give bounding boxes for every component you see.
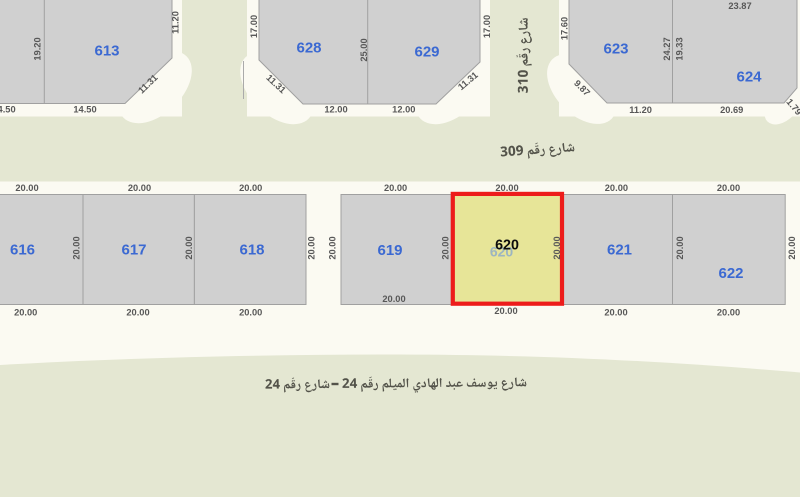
svg-text:23.87: 23.87: [728, 1, 751, 11]
svg-text:20.00: 20.00: [604, 308, 627, 318]
svg-text:616: 616: [10, 242, 35, 259]
svg-text:20.00: 20.00: [184, 236, 194, 259]
svg-text:628: 628: [296, 40, 321, 57]
svg-text:20.00: 20.00: [14, 308, 37, 318]
svg-text:617: 617: [121, 242, 146, 259]
svg-text:11.20: 11.20: [171, 11, 181, 34]
svg-text:20.69: 20.69: [720, 105, 743, 115]
svg-text:20.00: 20.00: [440, 236, 450, 259]
svg-text:20.00: 20.00: [239, 183, 262, 193]
svg-text:20.00: 20.00: [787, 236, 797, 259]
svg-text:20.00: 20.00: [307, 236, 317, 259]
svg-text:20.00: 20.00: [552, 236, 562, 259]
svg-text:621: 621: [607, 242, 632, 259]
svg-text:623: 623: [603, 41, 628, 58]
svg-text:620: 620: [495, 238, 519, 254]
svg-text:17.00: 17.00: [249, 15, 259, 38]
svg-text:20.00: 20.00: [382, 294, 405, 304]
svg-text:19.33: 19.33: [675, 37, 685, 60]
svg-text:19.20: 19.20: [33, 37, 43, 60]
svg-text:20.00: 20.00: [72, 236, 82, 259]
svg-text:25.00: 25.00: [359, 38, 369, 61]
svg-text:14.50: 14.50: [0, 105, 16, 115]
svg-text:20.00: 20.00: [126, 308, 149, 318]
svg-text:618: 618: [239, 242, 264, 259]
svg-text:20.00: 20.00: [384, 183, 407, 193]
svg-text:20.00: 20.00: [494, 306, 517, 316]
svg-text:619: 619: [377, 242, 402, 259]
svg-text:12.00: 12.00: [392, 105, 415, 115]
svg-text:20.00: 20.00: [239, 308, 262, 318]
svg-text:17.00: 17.00: [482, 15, 492, 38]
svg-text:629: 629: [414, 44, 439, 61]
svg-text:14.50: 14.50: [73, 105, 96, 115]
svg-text:613: 613: [94, 43, 119, 60]
svg-text:17.60: 17.60: [560, 17, 570, 40]
svg-text:20.00: 20.00: [717, 183, 740, 193]
svg-text:24.27: 24.27: [662, 37, 672, 60]
svg-text:12.00: 12.00: [324, 105, 347, 115]
svg-text:20.00: 20.00: [328, 236, 338, 259]
svg-text:20.00: 20.00: [605, 183, 628, 193]
svg-text:624: 624: [736, 69, 762, 86]
svg-text:20.00: 20.00: [717, 308, 740, 318]
svg-text:20.00: 20.00: [675, 236, 685, 259]
svg-text:20.00: 20.00: [128, 183, 151, 193]
svg-text:622: 622: [718, 265, 743, 282]
svg-text:20.00: 20.00: [495, 183, 518, 193]
svg-text:20.00: 20.00: [15, 183, 38, 193]
svg-text:11.20: 11.20: [629, 105, 652, 115]
